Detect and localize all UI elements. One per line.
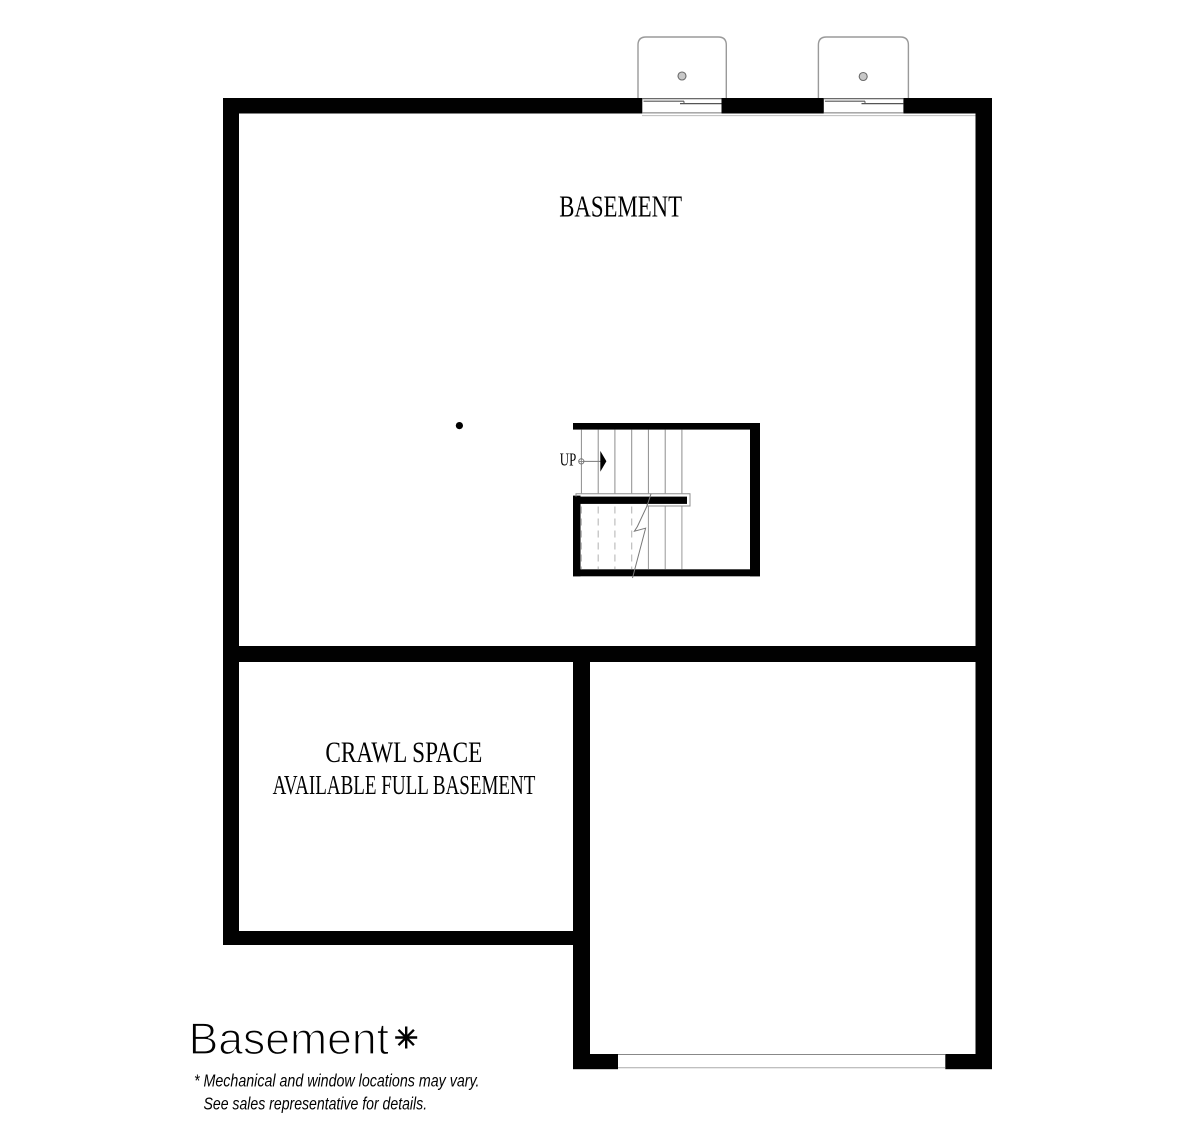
svg-text:* Mechanical and window locati: * Mechanical and window locations may va… (194, 1072, 480, 1091)
svg-text:UP: UP (560, 451, 576, 470)
svg-text:BASEMENT: BASEMENT (559, 189, 682, 223)
svg-text:AVAILABLE FULL BASEMENT: AVAILABLE FULL BASEMENT (273, 771, 536, 801)
svg-text:Basement: Basement (189, 1015, 390, 1064)
svg-text:CRAWL SPACE: CRAWL SPACE (325, 735, 482, 768)
svg-text:See sales representative for d: See sales representative for details. (204, 1095, 428, 1114)
